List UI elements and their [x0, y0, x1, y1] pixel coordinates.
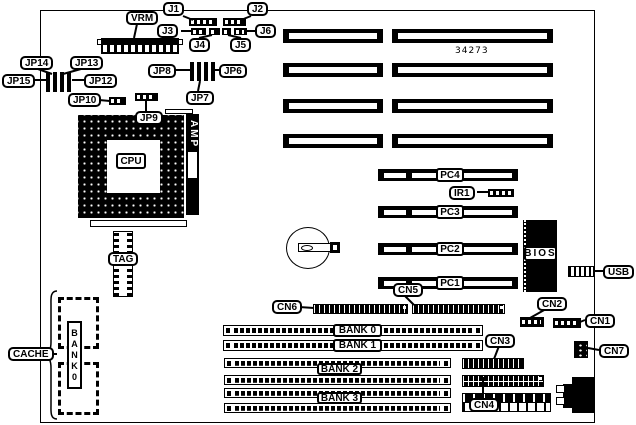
pc3-label: PC3: [436, 205, 464, 219]
j2-header: [223, 18, 246, 26]
amp-label: AMP: [186, 116, 199, 152]
j4-label: J4: [189, 38, 210, 52]
j6-header: [234, 28, 247, 35]
jp8-label: JP8: [148, 64, 176, 78]
j6-label: J6: [255, 24, 276, 38]
cn7-label: CN7: [599, 344, 629, 358]
amp-window: [188, 152, 197, 178]
tag-label: TAG: [108, 252, 138, 266]
j2-label: J2: [247, 2, 268, 16]
bank2-label: BANK 2: [317, 363, 362, 375]
keyboard-connector: [572, 377, 595, 413]
j1-label: J1: [163, 2, 184, 16]
cn6-connector: [313, 304, 408, 314]
cn4-label: CN4: [469, 398, 499, 412]
jp9-label: JP9: [135, 111, 163, 125]
bios-label: BIOS: [524, 246, 557, 261]
cn1-label: CN1: [585, 314, 615, 328]
vrm-connector: [101, 38, 179, 54]
jp12-jp15-jumper-block: [46, 72, 74, 92]
cn5-connector: [412, 304, 505, 314]
jp9-header: [135, 93, 158, 101]
cpu-label: CPU: [116, 153, 146, 169]
board-part-number: 34273: [455, 46, 489, 56]
j1-header: [189, 18, 217, 26]
jp15-label: JP15: [2, 74, 35, 88]
isa-slot-segment: [283, 63, 383, 77]
bank3-label: BANK 3: [317, 392, 362, 404]
cpu-socket-lever: [90, 220, 187, 227]
isa-slot-segment: [283, 134, 383, 148]
cn1-connector: [553, 318, 581, 328]
cache-label: CACHE: [8, 347, 54, 361]
jp6-jp7-jp8-jumper-block: [190, 62, 217, 81]
ir1-connector: [488, 189, 514, 197]
cn2-connector: [520, 317, 544, 327]
cn4-connector: [462, 375, 544, 387]
j3-header: [191, 28, 206, 35]
isa-slot-segment: [392, 134, 553, 148]
keyboard-connector-pin: [556, 397, 565, 405]
simm-socket-bank2: [224, 375, 451, 385]
jp6-label: JP6: [219, 64, 247, 78]
ir1-label: IR1: [449, 186, 475, 200]
battery-contact: [301, 245, 313, 251]
isa-slot-segment: [283, 29, 383, 43]
jp10-header: [109, 97, 126, 105]
simm-socket-bank3: [224, 403, 451, 413]
pc4-label: PC4: [436, 168, 464, 182]
cn3-label: CN3: [485, 334, 515, 348]
pc2-label: PC2: [436, 242, 464, 256]
usb-label: USB: [603, 265, 634, 279]
isa-slot-segment: [283, 99, 383, 113]
keyboard-connector-pin: [556, 385, 565, 393]
j4-header: [209, 28, 220, 35]
jp12-label: JP12: [84, 74, 117, 88]
jp14-label: JP14: [20, 56, 53, 70]
isa-slot-segment: [392, 29, 553, 43]
vrm-label: VRM: [126, 11, 158, 25]
motherboard-diagram: 34273 BIOS CPU AMP TAG BANK0: [0, 0, 636, 425]
jp7-label: JP7: [186, 91, 214, 105]
cn6-label: CN6: [272, 300, 302, 314]
bank0-label: BANK 0: [333, 324, 382, 337]
cn3-connector: [462, 358, 524, 369]
bank1-label: BANK 1: [333, 339, 382, 352]
isa-slot-segment: [392, 63, 553, 77]
usb-connector: [568, 266, 594, 277]
pc1-label: PC1: [436, 276, 464, 290]
cn7-connector: [574, 341, 588, 358]
isa-slot-segment: [392, 99, 553, 113]
cn5-label: CN5: [393, 283, 423, 297]
battery-clip-tip: [330, 242, 340, 253]
j5-label: J5: [230, 38, 251, 52]
cn2-label: CN2: [537, 297, 567, 311]
jp13-label: JP13: [70, 56, 103, 70]
j3-label: J3: [157, 24, 178, 38]
j5-header: [222, 28, 231, 35]
jp10-label: JP10: [68, 93, 101, 107]
cache-bank0-chip-label: BANK0: [67, 321, 82, 389]
